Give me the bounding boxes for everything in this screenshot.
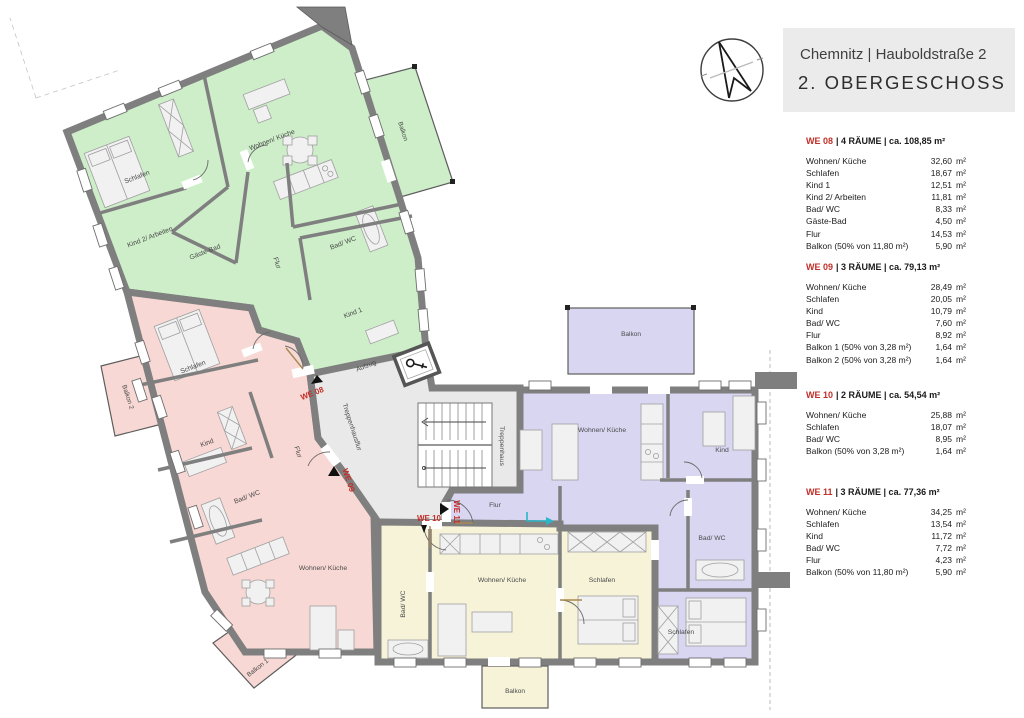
survey-line (10, 18, 36, 98)
sofa-we10 (438, 604, 466, 656)
area-row: Flur8,92m² (806, 329, 972, 341)
room-area-value: 13,54 (918, 518, 952, 530)
room-area-unit: m² (952, 409, 972, 421)
area-row: Schlafen13,54m² (806, 518, 972, 530)
area-row: Schlafen18,07m² (806, 421, 972, 433)
area-table: Wohnen/ Küche32,60m²Schlafen18,67m²Kind … (806, 155, 972, 252)
room-label: Wohnen/ Küche (299, 565, 347, 572)
room-label: Wohnen/ Küche (578, 427, 626, 434)
balcony-label: Balkon (621, 331, 641, 338)
listing-apartment-id: WE 10 (806, 390, 833, 400)
area-row: Kind 2/ Arbeiten11,81m² (806, 191, 972, 203)
bathtub-we10 (388, 640, 428, 658)
listing-header: WE 08| 4 RÄUME | ca. 108,85 m² (806, 136, 972, 146)
room-area-value: 25,88 (918, 409, 952, 421)
balcony-label: Balkon (505, 688, 525, 695)
room-area-unit: m² (952, 445, 972, 457)
room-area-value: 34,25 (918, 506, 952, 518)
room-area-value: 1,64 (918, 445, 952, 457)
area-row: Balkon (50% von 3,28 m²)1,64m² (806, 445, 972, 457)
area-row: Bad/ WC7,72m² (806, 542, 972, 554)
room-area-value: 10,79 (918, 305, 952, 317)
room-name: Schlafen (806, 518, 918, 530)
room-name: Kind (806, 530, 918, 542)
desk-we11 (703, 412, 725, 446)
room-area-unit: m² (952, 354, 972, 366)
staircase (418, 403, 492, 487)
area-row: Wohnen/ Küche28,49m² (806, 281, 972, 293)
bed-kind-we11 (733, 396, 755, 450)
room-name: Flur (806, 329, 918, 341)
room-area-value: 8,92 (918, 329, 952, 341)
area-row: Schlafen18,67m² (806, 167, 972, 179)
listing-apartment-id: WE 08 (806, 136, 833, 146)
room-area-unit: m² (952, 215, 972, 227)
area-table: Wohnen/ Küche28,49m²Schlafen20,05m²Kind1… (806, 281, 972, 366)
area-row: Balkon (50% von 11,80 m²)5,90m² (806, 240, 972, 252)
room-name: Wohnen/ Küche (806, 506, 918, 518)
area-row: Schlafen20,05m² (806, 293, 972, 305)
room-area-value: 5,90 (918, 566, 952, 578)
listing-header: WE 09| 3 RÄUME | ca. 79,13 m² (806, 262, 972, 272)
table-we11 (520, 430, 542, 470)
room-area-unit: m² (952, 317, 972, 329)
room-area-value: 32,60 (918, 155, 952, 167)
room-area-value: 11,72 (918, 530, 952, 542)
room-area-unit: m² (952, 179, 972, 191)
room-label: Bad/ WC (400, 590, 407, 617)
room-area-unit: m² (952, 530, 972, 542)
room-name: Bad/ WC (806, 317, 918, 329)
unit-label-we11: WE 11 (452, 500, 461, 524)
listing-apartment-id: WE 09 (806, 262, 833, 272)
room-label: Wohnen/ Küche (478, 577, 526, 584)
room-area-unit: m² (952, 167, 972, 179)
room-area-value: 4,23 (918, 554, 952, 566)
room-name: Kind (806, 305, 918, 317)
room-label: Treppenhaus (498, 426, 505, 466)
listing-header-rest: | 3 RÄUME | ca. 79,13 m² (836, 262, 940, 272)
room-area-value: 1,64 (918, 354, 952, 366)
bed-we10 (578, 596, 638, 644)
room-area-unit: m² (952, 542, 972, 554)
listing-header-rest: | 2 RÄUME | ca. 54,54 m² (836, 390, 940, 400)
room-area-value: 14,53 (918, 228, 952, 240)
room-area-unit: m² (952, 293, 972, 305)
balcony-we11 (565, 305, 696, 374)
room-label: Bad/ WC (698, 535, 725, 542)
room-area-unit: m² (952, 421, 972, 433)
area-table: Wohnen/ Küche25,88m²Schlafen18,07m²Bad/ … (806, 409, 972, 457)
room-name: Bad/ WC (806, 542, 918, 554)
listing-header-rest: | 3 RÄUME | ca. 77,36 m² (836, 487, 940, 497)
room-area-value: 18,07 (918, 421, 952, 433)
listing-apartment-id: WE 11 (806, 487, 833, 497)
room-area-unit: m² (952, 203, 972, 215)
room-label: Schlafen (589, 577, 616, 584)
room-area-unit: m² (952, 240, 972, 252)
room-name: Balkon (50% von 11,80 m²) (806, 240, 918, 252)
room-area-unit: m² (952, 341, 972, 353)
north-arrow-icon (701, 39, 763, 101)
room-area-unit: m² (952, 228, 972, 240)
room-area-value: 8,33 (918, 203, 952, 215)
bed-we11 (686, 598, 746, 646)
room-name: Kind 2/ Arbeiten (806, 191, 918, 203)
wall-stub-right-top (755, 372, 797, 389)
area-row: Kind 112,51m² (806, 179, 972, 191)
room-area-value: 7,60 (918, 317, 952, 329)
bathtub-we11 (696, 560, 744, 580)
listing-we11: WE 11| 3 RÄUME | ca. 77,36 m² Wohnen/ Kü… (806, 487, 972, 579)
area-row: Wohnen/ Küche25,88m² (806, 409, 972, 421)
room-area-unit: m² (952, 566, 972, 578)
floor-title: 2. OBERGESCHOSS (798, 72, 1006, 94)
area-row: Wohnen/ Küche34,25m² (806, 506, 972, 518)
room-area-value: 5,90 (918, 240, 952, 252)
room-area-value: 4,50 (918, 215, 952, 227)
room-area-unit: m² (952, 305, 972, 317)
room-name: Gäste-Bad (806, 215, 918, 227)
room-name: Schlafen (806, 167, 918, 179)
room-name: Flur (806, 554, 918, 566)
kitchen-we11 (641, 404, 663, 480)
room-name: Bad/ WC (806, 203, 918, 215)
area-row: Wohnen/ Küche32,60m² (806, 155, 972, 167)
room-label: Flur (489, 502, 501, 509)
area-row: Flur4,23m² (806, 554, 972, 566)
listing-we08: WE 08| 4 RÄUME | ca. 108,85 m² Wohnen/ K… (806, 136, 972, 252)
area-row: Bad/ WC8,95m² (806, 433, 972, 445)
wardrobe-we10 (568, 532, 646, 552)
room-name: Balkon (50% von 3,28 m²) (806, 445, 918, 457)
area-row: Bad/ WC7,60m² (806, 317, 972, 329)
room-name: Schlafen (806, 421, 918, 433)
room-area-unit: m² (952, 518, 972, 530)
room-area-value: 11,81 (918, 191, 952, 203)
area-row: Balkon 1 (50% von 3,28 m²)1,64m² (806, 341, 972, 353)
room-label: Schlafen (668, 629, 695, 636)
area-row: Kind11,72m² (806, 530, 972, 542)
room-name: Schlafen (806, 293, 918, 305)
wall-stub-right-bottom (752, 572, 790, 588)
area-row: Bad/ WC8,33m² (806, 203, 972, 215)
room-area-unit: m² (952, 554, 972, 566)
listing-header-rest: | 4 RÄUME | ca. 108,85 m² (836, 136, 945, 146)
room-name: Wohnen/ Küche (806, 155, 918, 167)
room-name: Balkon 1 (50% von 3,28 m²) (806, 341, 918, 353)
room-area-value: 28,49 (918, 281, 952, 293)
room-area-value: 7,72 (918, 542, 952, 554)
room-area-unit: m² (952, 506, 972, 518)
unit-label-we10: WE 10 (417, 514, 442, 523)
area-table: Wohnen/ Küche34,25m²Schlafen13,54m²Kind1… (806, 506, 972, 579)
room-area-unit: m² (952, 281, 972, 293)
listing-header: WE 10| 2 RÄUME | ca. 54,54 m² (806, 390, 972, 400)
room-name: Balkon (50% von 11,80 m²) (806, 566, 918, 578)
room-area-unit: m² (952, 433, 972, 445)
room-name: Wohnen/ Küche (806, 409, 918, 421)
room-area-value: 18,67 (918, 167, 952, 179)
kitchen-we10 (440, 534, 558, 554)
room-area-unit: m² (952, 155, 972, 167)
room-area-value: 20,05 (918, 293, 952, 305)
balcony-we10 (482, 666, 548, 708)
room-name: Kind 1 (806, 179, 918, 191)
sofa-we11 (552, 424, 578, 480)
title-block: Chemnitz | Hauboldstraße 2 2. OBERGESCHO… (783, 28, 1015, 112)
area-row: Kind10,79m² (806, 305, 972, 317)
area-row: Gäste-Bad4,50m² (806, 215, 972, 227)
room-name: Balkon 2 (50% von 3,28 m²) (806, 354, 918, 366)
sofa-we09 (310, 606, 336, 650)
project-address: Chemnitz | Hauboldstraße 2 (800, 46, 986, 63)
floorplan-drawing: Schlafen Wohnen/ Küche Kind 2/ Arbeiten … (0, 0, 800, 718)
room-name: Flur (806, 228, 918, 240)
room-area-value: 8,95 (918, 433, 952, 445)
room-label: Kind (715, 447, 729, 454)
listing-we09: WE 09| 3 RÄUME | ca. 79,13 m² Wohnen/ Kü… (806, 262, 972, 366)
area-row: Balkon 2 (50% von 3,28 m²)1,64m² (806, 354, 972, 366)
room-area-value: 1,64 (918, 341, 952, 353)
area-row: Balkon (50% von 11,80 m²)5,90m² (806, 566, 972, 578)
room-name: Bad/ WC (806, 433, 918, 445)
table-we10 (472, 612, 512, 632)
room-area-unit: m² (952, 191, 972, 203)
survey-line (36, 70, 120, 98)
area-row: Flur14,53m² (806, 228, 972, 240)
floorplan-page: Schlafen Wohnen/ Küche Kind 2/ Arbeiten … (0, 0, 1024, 718)
room-area-value: 12,51 (918, 179, 952, 191)
room-area-unit: m² (952, 329, 972, 341)
listing-header: WE 11| 3 RÄUME | ca. 77,36 m² (806, 487, 972, 497)
listing-we10: WE 10| 2 RÄUME | ca. 54,54 m² Wohnen/ Kü… (806, 390, 972, 457)
room-name: Wohnen/ Küche (806, 281, 918, 293)
